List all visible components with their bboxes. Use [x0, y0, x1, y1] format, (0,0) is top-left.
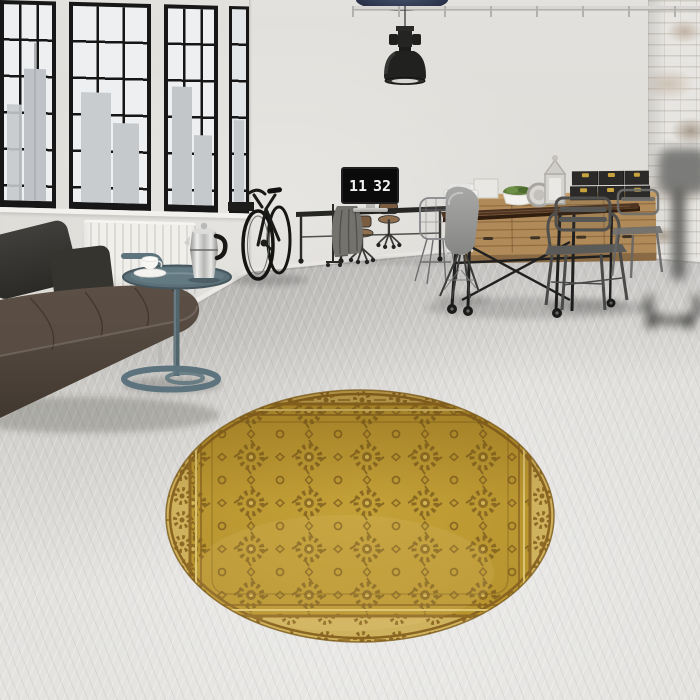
- pendant-lamp: [384, 6, 426, 84]
- caster-wheel: [646, 318, 656, 328]
- monitor-base: [353, 208, 388, 212]
- bicycle: [228, 187, 308, 286]
- blurred-chair-column: [672, 188, 685, 280]
- clock-hours: 11: [349, 177, 367, 195]
- caster-wheel: [684, 318, 694, 328]
- sofa-leg: [158, 342, 162, 364]
- scene: 11 32: [0, 0, 700, 700]
- clock-minutes: 32: [373, 177, 391, 195]
- garment: [332, 206, 363, 256]
- round-rug: [164, 388, 556, 646]
- storage-boxes: [570, 171, 650, 201]
- blurred-chair: [642, 148, 700, 328]
- monitor: 11 32: [341, 167, 399, 204]
- wall-mount: [228, 202, 254, 211]
